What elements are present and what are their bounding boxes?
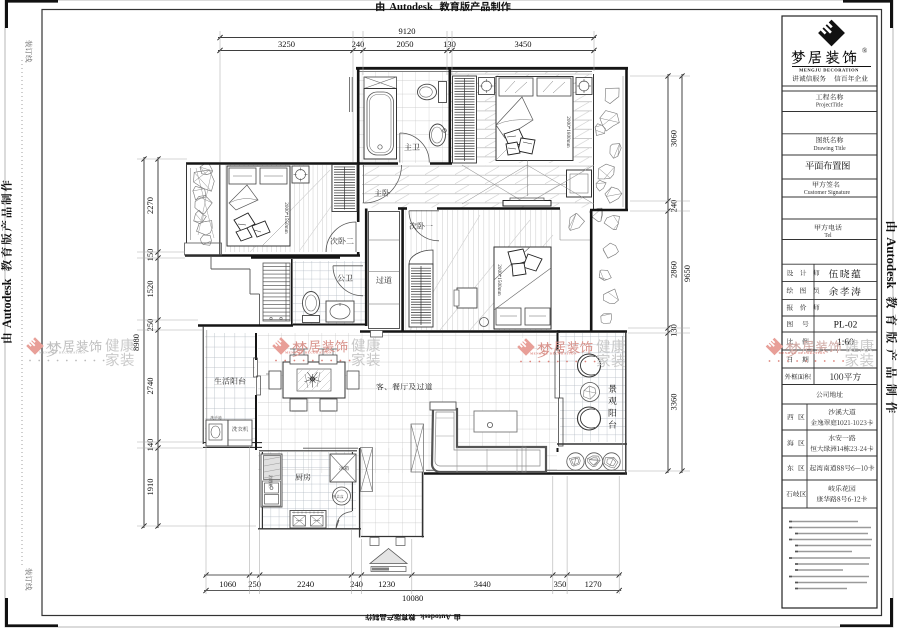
svg-text:130: 130 bbox=[443, 39, 456, 49]
svg-text:2050: 2050 bbox=[397, 39, 414, 49]
svg-text:3360: 3360 bbox=[669, 394, 679, 411]
svg-text:1270: 1270 bbox=[585, 579, 602, 589]
svg-text:250: 250 bbox=[248, 579, 261, 589]
svg-text:Tel: Tel bbox=[824, 233, 832, 239]
svg-text:2240: 2240 bbox=[297, 579, 314, 589]
svg-text:2000*1800mm: 2000*1800mm bbox=[565, 116, 571, 147]
svg-text:3250: 3250 bbox=[278, 39, 295, 49]
svg-text:130: 130 bbox=[669, 324, 679, 337]
svg-text:9120: 9120 bbox=[399, 26, 416, 36]
svg-text:PL-02: PL-02 bbox=[834, 321, 858, 331]
svg-text:240: 240 bbox=[350, 579, 363, 589]
svg-text:Autodesk: Autodesk bbox=[884, 237, 898, 289]
svg-text:140: 140 bbox=[145, 439, 155, 452]
svg-text:ProjectTitle: ProjectTitle bbox=[816, 103, 844, 109]
svg-text:2000*1550mm: 2000*1550mm bbox=[283, 202, 289, 233]
svg-text:MENG JU DECORATION: MENG JU DECORATION bbox=[779, 351, 826, 355]
svg-text:1230: 1230 bbox=[378, 579, 395, 589]
svg-text:10080: 10080 bbox=[402, 593, 423, 603]
svg-text:MENG JU DECORATION: MENG JU DECORATION bbox=[285, 350, 332, 354]
svg-text:240: 240 bbox=[352, 39, 365, 49]
svg-text:150: 150 bbox=[145, 249, 155, 262]
svg-text:Autodesk: Autodesk bbox=[389, 1, 433, 13]
svg-text:2000*1500mm: 2000*1500mm bbox=[496, 264, 502, 295]
svg-text:1910: 1910 bbox=[145, 479, 155, 496]
svg-text:MENG JU DECORATION: MENG JU DECORATION bbox=[530, 351, 577, 355]
svg-text:Drawing Title: Drawing Title bbox=[813, 146, 846, 152]
svg-text:9650: 9650 bbox=[682, 265, 692, 282]
svg-text:2860: 2860 bbox=[669, 261, 679, 278]
svg-text:MENGJU DECORATION: MENGJU DECORATION bbox=[799, 68, 859, 73]
svg-text:3060: 3060 bbox=[669, 130, 679, 147]
svg-text:1060: 1060 bbox=[219, 579, 236, 589]
svg-text:2740: 2740 bbox=[145, 378, 155, 395]
svg-text:®: ® bbox=[862, 47, 868, 55]
svg-text:1520: 1520 bbox=[145, 281, 155, 298]
svg-text:3440: 3440 bbox=[474, 579, 491, 589]
svg-text:250: 250 bbox=[145, 319, 155, 332]
svg-text:MENG JU DECORATION: MENG JU DECORATION bbox=[39, 350, 86, 354]
svg-text:240: 240 bbox=[669, 200, 679, 213]
svg-text:Autodesk: Autodesk bbox=[419, 613, 451, 622]
svg-text:350: 350 bbox=[554, 579, 567, 589]
svg-text:Autodesk: Autodesk bbox=[0, 278, 14, 328]
svg-text:Customer Signature: Customer Signature bbox=[804, 190, 851, 196]
svg-text:2270: 2270 bbox=[145, 197, 155, 214]
svg-text:3450: 3450 bbox=[515, 39, 532, 49]
